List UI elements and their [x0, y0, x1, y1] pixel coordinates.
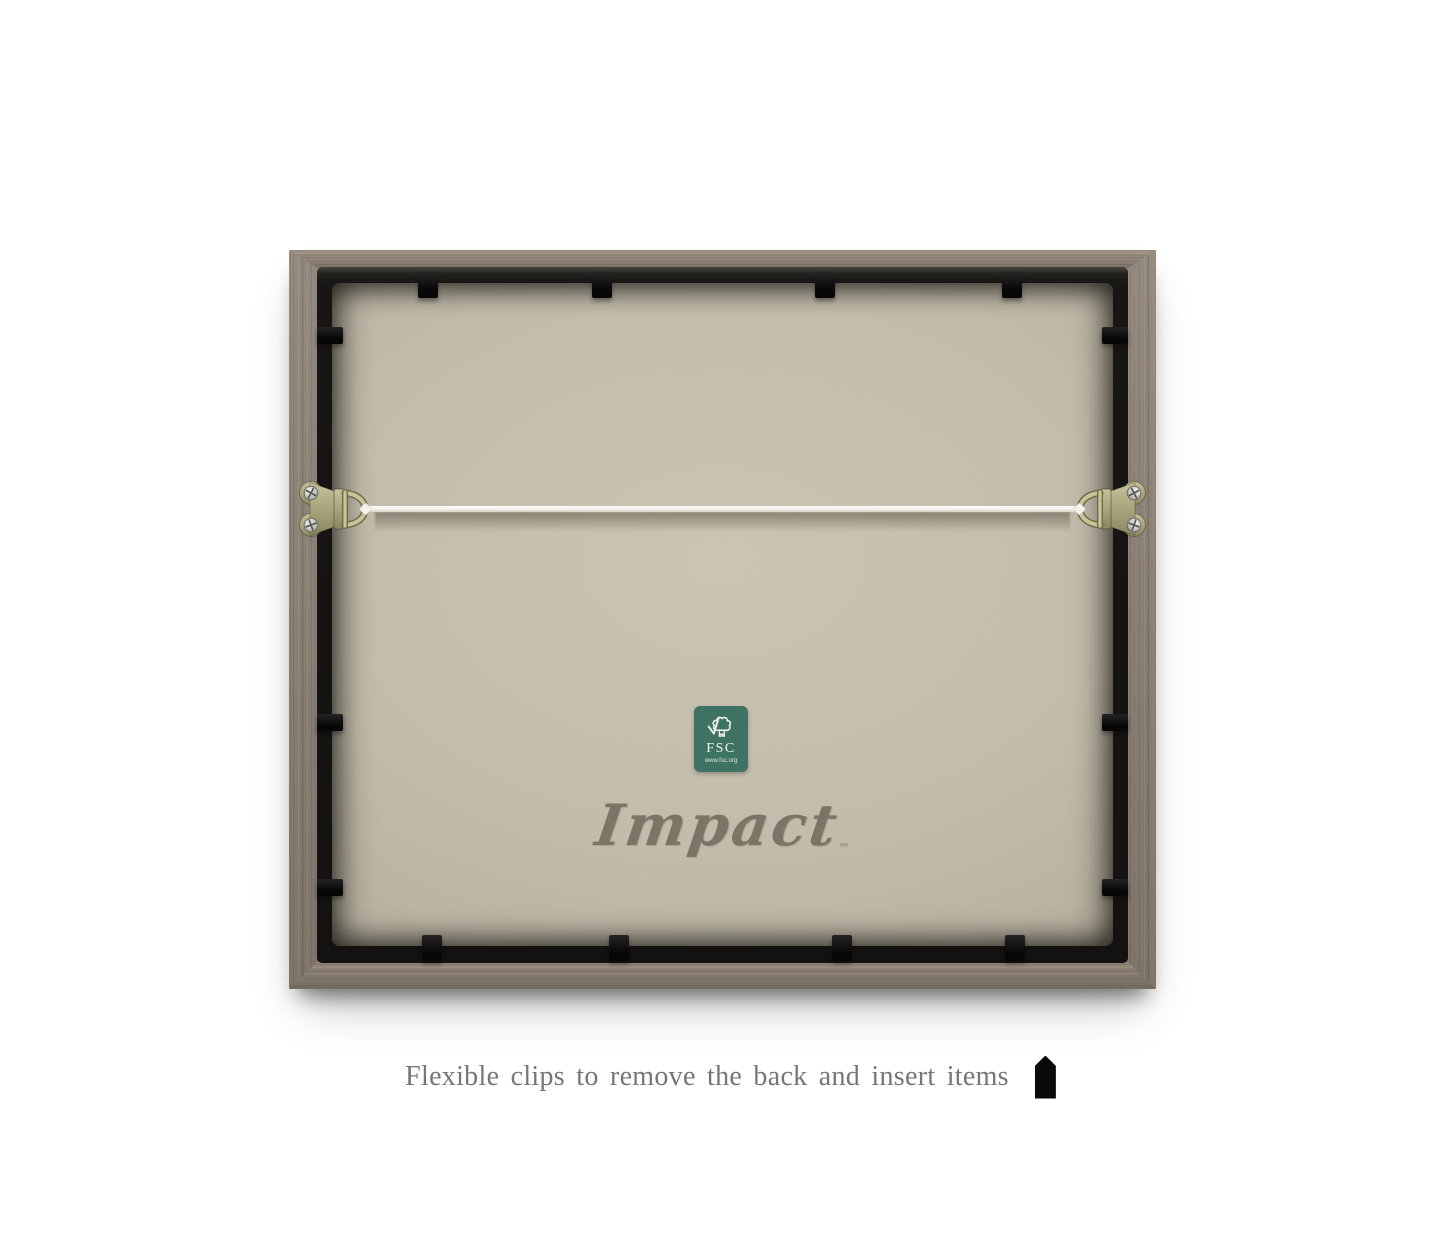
flexible-clip	[422, 935, 442, 961]
flexible-clip	[1102, 879, 1128, 896]
flexible-clip	[317, 879, 343, 896]
flexible-clip	[1102, 327, 1128, 344]
flexible-clip	[1102, 714, 1128, 731]
flexible-clip	[832, 935, 852, 961]
picture-frame-back: FSC www.fsc.org Impact™	[289, 250, 1156, 989]
flexible-clip	[317, 714, 343, 731]
flexible-clip	[418, 272, 438, 298]
product-photo: FSC www.fsc.org Impact™ Flexible clips t…	[0, 0, 1445, 1236]
flexible-clip	[592, 272, 612, 298]
flexible-clip	[815, 272, 835, 298]
flexible-clip	[1005, 935, 1025, 961]
caption: Flexible clips to remove the back and in…	[8, 1047, 1445, 1107]
flexible-clip-icon	[1035, 1056, 1056, 1099]
flexible-clip	[317, 327, 343, 344]
clips-layer	[289, 250, 1156, 989]
caption-text: Flexible clips to remove the back and in…	[405, 1061, 1009, 1093]
flexible-clip	[1002, 272, 1022, 298]
flexible-clip	[609, 935, 629, 961]
